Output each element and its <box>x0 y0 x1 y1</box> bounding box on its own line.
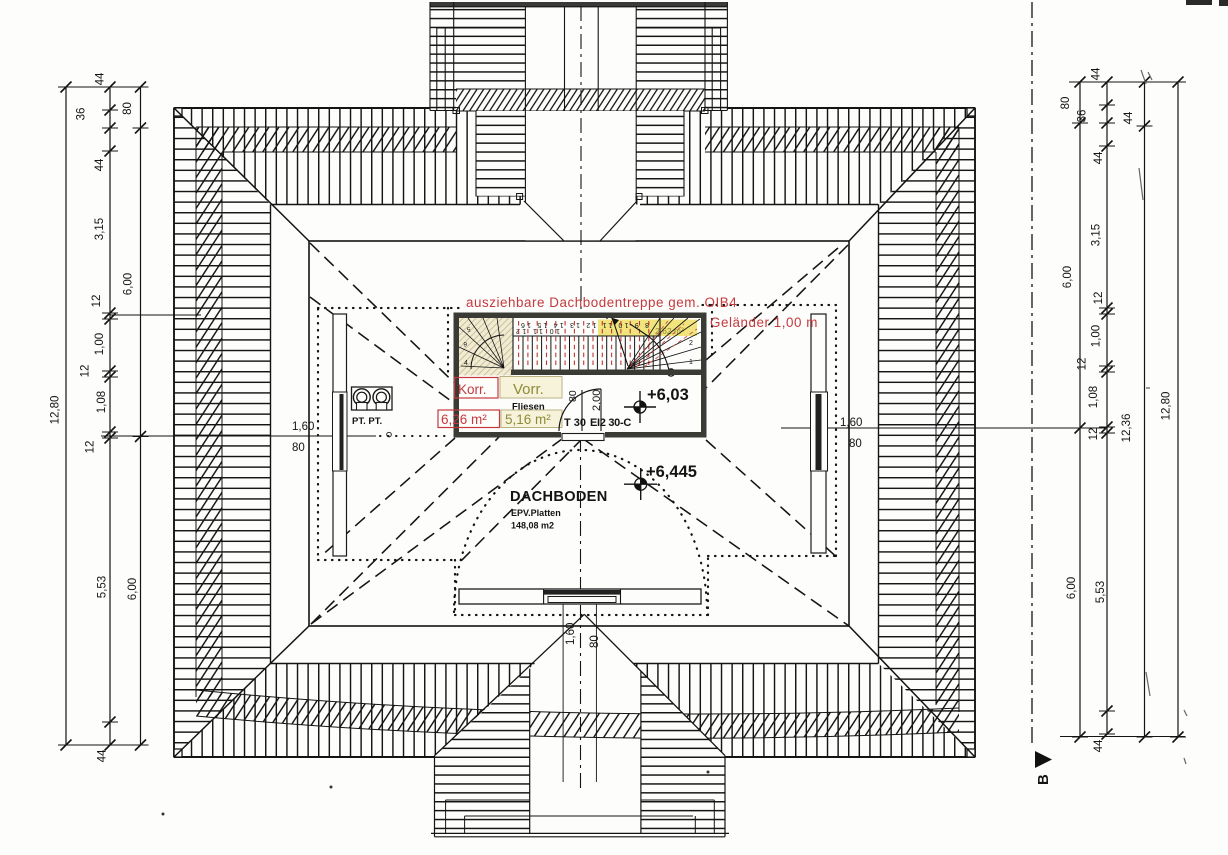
svg-text:ausziehbare Dachbodentreppe ge: ausziehbare Dachbodentreppe gem. OIB4 <box>466 295 737 310</box>
svg-text:1,60: 1,60 <box>565 623 577 645</box>
svg-text:12: 12 <box>1077 358 1089 371</box>
svg-text:6,26 m²: 6,26 m² <box>441 412 487 427</box>
svg-text:T 30: T 30 <box>564 417 586 429</box>
svg-text:PT. PT.: PT. PT. <box>352 416 382 427</box>
svg-text:5,16 m²: 5,16 m² <box>505 412 551 427</box>
svg-text:6,00: 6,00 <box>1066 577 1078 599</box>
svg-text:3,15: 3,15 <box>1091 224 1103 246</box>
svg-text:36: 36 <box>76 108 88 121</box>
svg-text:1,08: 1,08 <box>1088 386 1100 408</box>
svg-text:12,80: 12,80 <box>1161 392 1173 421</box>
svg-text:44: 44 <box>1123 111 1135 124</box>
svg-text:+6,03: +6,03 <box>647 386 689 404</box>
svg-text:Geländer 1,00 m: Geländer 1,00 m <box>710 315 818 330</box>
svg-text:6: 6 <box>463 340 467 347</box>
svg-text:+6,445: +6,445 <box>646 463 697 481</box>
svg-text:148,08 m2: 148,08 m2 <box>511 521 554 531</box>
svg-text:44: 44 <box>1091 67 1103 80</box>
svg-text:44: 44 <box>1093 739 1105 752</box>
svg-text:44: 44 <box>1093 151 1105 164</box>
svg-text:80: 80 <box>1060 97 1072 110</box>
svg-text:12: 12 <box>1093 292 1105 305</box>
svg-text:1,60: 1,60 <box>292 421 314 433</box>
svg-text:1,08: 1,08 <box>96 391 108 413</box>
svg-text:EI2 30-C: EI2 30-C <box>590 417 631 429</box>
svg-text:10 11 12: 10 11 12 <box>516 327 560 334</box>
svg-text:6,00: 6,00 <box>1062 266 1074 288</box>
svg-text:6,00: 6,00 <box>127 578 139 600</box>
svg-text:36: 36 <box>1077 110 1089 123</box>
svg-text:80: 80 <box>122 102 134 115</box>
svg-text:1,60: 1,60 <box>840 417 862 429</box>
svg-text:4: 4 <box>464 360 468 367</box>
svg-text:80: 80 <box>589 635 601 648</box>
svg-text:Vorr.: Vorr. <box>513 381 544 398</box>
svg-text:3,15: 3,15 <box>94 218 106 240</box>
svg-text:Korr.: Korr. <box>458 382 487 397</box>
svg-text:DACHBODEN: DACHBODEN <box>510 489 608 505</box>
svg-text:12: 12 <box>1088 428 1100 441</box>
svg-text:1: 1 <box>689 359 693 366</box>
svg-text:12: 12 <box>85 441 97 454</box>
svg-text:5,53: 5,53 <box>97 576 109 598</box>
svg-text:1,00: 1,00 <box>94 333 106 355</box>
svg-text:12,36: 12,36 <box>1121 414 1133 443</box>
svg-text:12: 12 <box>80 365 92 378</box>
svg-text:12: 12 <box>91 295 103 308</box>
svg-text:44: 44 <box>95 72 107 85</box>
svg-text:44: 44 <box>94 158 106 171</box>
svg-text:2: 2 <box>689 340 693 347</box>
svg-text:B: B <box>1035 774 1052 785</box>
svg-text:12,80: 12,80 <box>50 396 62 425</box>
svg-text:5,53: 5,53 <box>1095 581 1107 603</box>
svg-text:6,00: 6,00 <box>123 273 135 295</box>
svg-text:80: 80 <box>292 442 305 454</box>
svg-text:EPV.Platten: EPV.Platten <box>511 508 561 518</box>
svg-text:44: 44 <box>97 749 109 762</box>
svg-text:1,00: 1,00 <box>1091 325 1103 347</box>
svg-text:80: 80 <box>849 438 862 450</box>
